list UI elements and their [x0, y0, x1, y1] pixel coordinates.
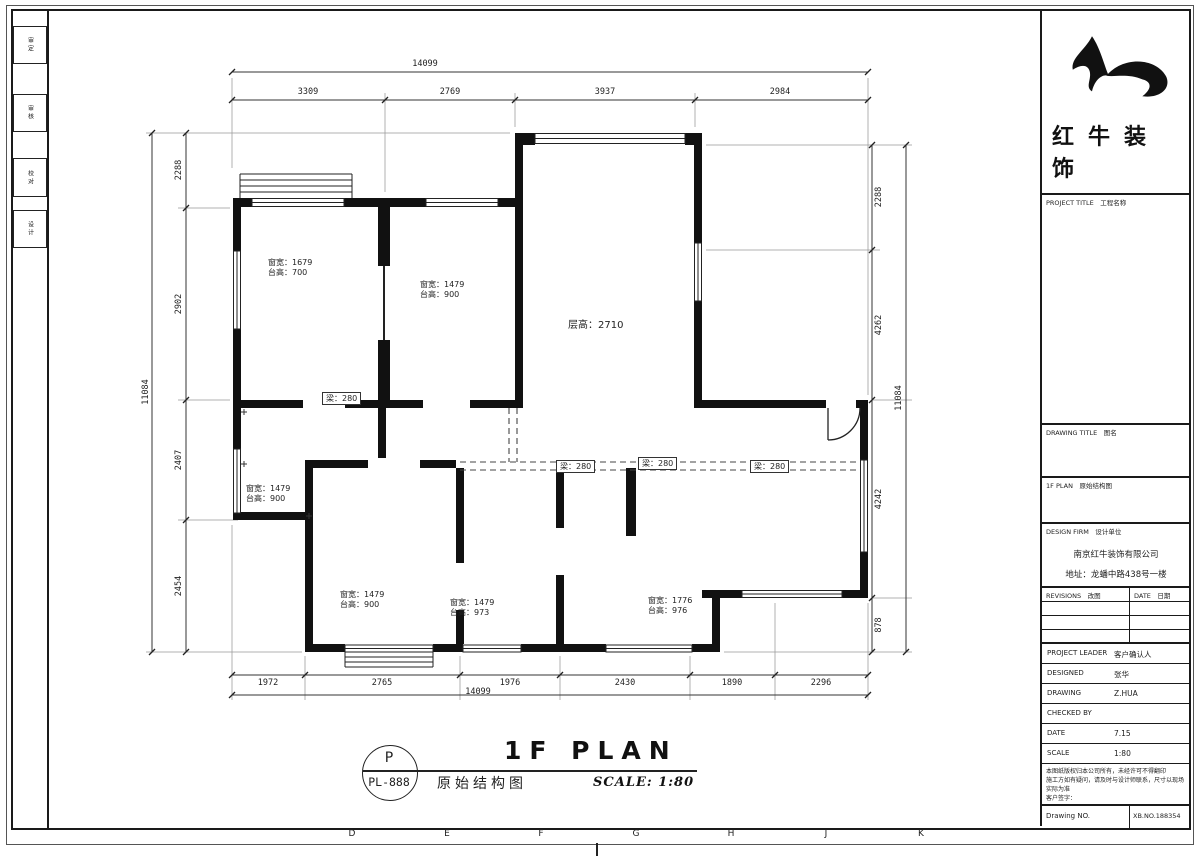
brand-logo-icon [1056, 31, 1176, 111]
revisions-label: REVISIONS 改图 [1042, 588, 1130, 601]
note-line: 客户签字： [1046, 794, 1187, 803]
note-line: 施工方如有疑问，请及时与设计师联系，尺寸以现场实际为准 [1046, 776, 1187, 794]
info-label: SCALE [1047, 749, 1069, 757]
release-cell: 1F PLAN 原始结构图 [1042, 478, 1190, 524]
window-width: 窗宽：1776 [648, 596, 692, 606]
drawing-number-label: Drawing NO. [1042, 806, 1130, 828]
dim-right-overall: 11084 [894, 385, 904, 411]
dim-bottom-overall: 14099 [465, 687, 491, 697]
window-width: 窗宽：1479 [420, 280, 464, 290]
dim-bottom-segment: 2765 [372, 678, 392, 688]
design-firm-cell: DESIGN FIRM 设计单位 南京红牛装饰有限公司 地址：龙蟠中路438号一… [1042, 524, 1190, 588]
floor-height-label: 层高：2710 [568, 316, 623, 331]
window-width: 窗宽：1479 [340, 590, 384, 600]
dim-top-segment: 3937 [595, 87, 615, 97]
revisions-empty-row [1042, 616, 1190, 630]
dim-right-segment: 2288 [874, 187, 884, 207]
dim-left-segment: 2902 [174, 294, 184, 314]
dim-right-segment: 4262 [874, 315, 884, 335]
revisions-empty-row [1042, 630, 1190, 644]
dim-right-segment: 4242 [874, 489, 884, 509]
dim-top-segment: 3309 [298, 87, 318, 97]
drawing-tag-number: PL-888 [368, 775, 410, 789]
revisions-date-label: DATE 日期 [1130, 588, 1190, 601]
brand-line2: 饰 [1052, 151, 1182, 183]
dim-left-overall: 11084 [141, 379, 151, 405]
dim-top-segment: 2984 [770, 87, 790, 97]
beam-label: 梁：280 [322, 392, 361, 405]
info-label: DATE [1047, 729, 1065, 737]
dim-top-segment: 2769 [440, 87, 460, 97]
dim-right-segment: 878 [874, 617, 884, 632]
drawing-name-cn: 原始结构图 [437, 773, 527, 793]
floor-plan-geometry [0, 0, 1200, 856]
window-label: 窗宽：1479 台高：900 [420, 280, 464, 300]
info-row: DRAWING Z.HUA [1042, 684, 1190, 704]
window-width: 窗宽：1479 [450, 598, 494, 608]
info-value: 客户确认人 [1114, 649, 1152, 660]
window-sill: 台高：973 [450, 608, 494, 618]
brand-line1: 红牛装 [1052, 119, 1182, 151]
window-sill: 台高：900 [340, 600, 384, 610]
window-sill: 台高：976 [648, 606, 692, 616]
dim-left-segment: 2454 [174, 576, 184, 596]
window-label: 窗宽：1479 台高：900 [340, 590, 384, 610]
title-block: 红牛装 饰 PROJECT TITLE 工程名称 DRAWING TITLE 图… [1040, 9, 1190, 826]
revisions-table: REVISIONS 改图 DATE 日期 [1042, 588, 1190, 644]
door-swing [828, 408, 860, 440]
info-value: Z.HUA [1114, 689, 1138, 698]
revisions-empty-row [1042, 602, 1190, 616]
company-name: 南京红牛装饰有限公司 [1042, 548, 1190, 560]
dim-bottom-segment: 1972 [258, 678, 278, 688]
dim-bottom-segment: 2430 [615, 678, 635, 688]
drawing-sheet: { "sheet": { "grid_letters": ["D", "E", … [0, 0, 1200, 856]
beam-label: 梁：280 [750, 460, 789, 473]
dim-bottom-segment: 1976 [500, 678, 520, 688]
info-value: 张华 [1114, 669, 1129, 680]
revisions-header-row: REVISIONS 改图 DATE 日期 [1042, 588, 1190, 602]
info-label: PROJECT LEADER [1047, 649, 1107, 657]
window-sill: 台高：900 [246, 494, 290, 504]
drawing-tag-letter: P [385, 750, 393, 766]
info-row: CHECKED BY [1042, 704, 1190, 724]
info-value: 1:80 [1114, 749, 1131, 758]
window-label: 窗宽：1479 台高：900 [246, 484, 290, 504]
release-header: 1F PLAN 原始结构图 [1042, 478, 1190, 490]
info-label: DRAWING [1047, 689, 1081, 697]
title-underline [363, 770, 697, 772]
info-label: CHECKED BY [1047, 709, 1092, 717]
scale-label: SCALE: 1:80 [593, 775, 694, 790]
drawing-number-value: XB.NO.188354 [1130, 806, 1190, 828]
window-label: 窗宽：1479 台高：973 [450, 598, 494, 618]
info-row: DATE 7.15 [1042, 724, 1190, 744]
drawing-title-header: DRAWING TITLE 图名 [1042, 425, 1190, 437]
logo-cell: 红牛装 饰 [1042, 9, 1190, 195]
beam-label: 梁：280 [556, 460, 595, 473]
notes-cell: 本图纸版权归本公司所有，未经许可不得翻印 施工方如有疑问，请及时与设计师联系，尺… [1042, 764, 1190, 806]
dim-top-overall: 14099 [412, 59, 438, 69]
beam-label: 梁：280 [638, 457, 677, 470]
company-address: 地址：龙蟠中路438号一楼 [1042, 568, 1190, 580]
bay-window-top [240, 174, 352, 198]
bay-window-bottom [345, 652, 433, 667]
dim-bottom-segment: 2296 [811, 678, 831, 688]
info-row: PROJECT LEADER 客户确认人 [1042, 644, 1190, 664]
info-value: 7.15 [1114, 729, 1131, 738]
brand-name: 红牛装 饰 [1052, 119, 1182, 183]
window-sill: 台高：900 [420, 290, 464, 300]
window-label: 窗宽：1776 台高：976 [648, 596, 692, 616]
project-title-cell: PROJECT TITLE 工程名称 [1042, 195, 1190, 425]
extension-lines [146, 78, 912, 700]
drawing-number-row: Drawing NO. XB.NO.188354 [1042, 806, 1190, 830]
note-line: 本图纸版权归本公司所有，未经许可不得翻印 [1046, 767, 1187, 776]
design-firm-header: DESIGN FIRM 设计单位 [1042, 524, 1190, 536]
dimension-lines [152, 72, 906, 695]
dim-left-segment: 2288 [174, 160, 184, 180]
drawing-title-cell: DRAWING TITLE 图名 [1042, 425, 1190, 478]
info-label: DESIGNED [1047, 669, 1084, 677]
window-label: 窗宽：1679 台高：700 [268, 258, 312, 278]
dim-left-segment: 2407 [174, 450, 184, 470]
info-row: SCALE 1:80 [1042, 744, 1190, 764]
plan-title: 1F PLAN [504, 736, 678, 765]
dimension-ticks [149, 69, 909, 698]
info-row: DESIGNED 张华 [1042, 664, 1190, 684]
dim-bottom-segment: 1890 [722, 678, 742, 688]
window-width: 窗宽：1679 [268, 258, 312, 268]
window-width: 窗宽：1479 [246, 484, 290, 494]
project-title-header: PROJECT TITLE 工程名称 [1042, 195, 1190, 207]
window-sill: 台高：700 [268, 268, 312, 278]
